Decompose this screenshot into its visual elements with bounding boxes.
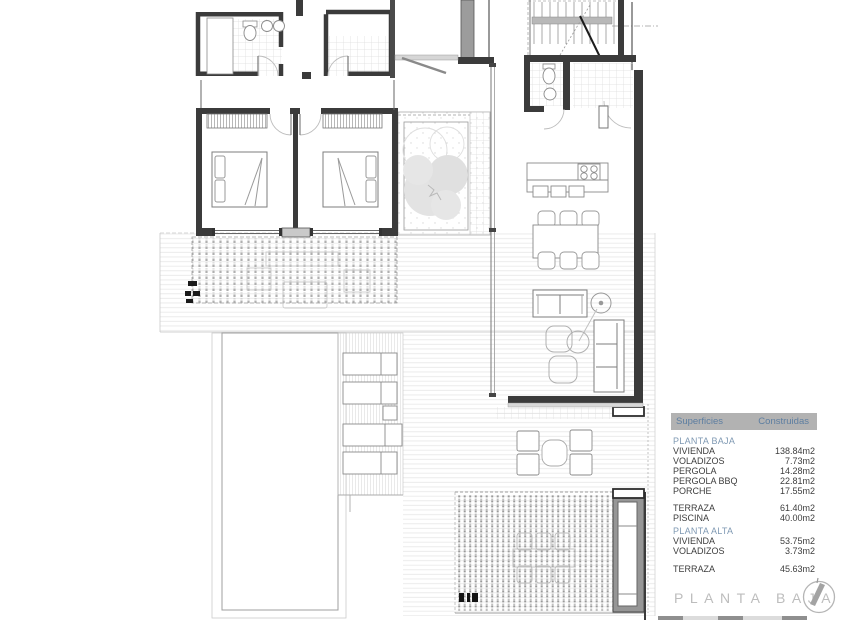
scale-bar <box>782 616 807 620</box>
section-title: PLANTA BAJA <box>671 436 817 446</box>
scale-bar <box>683 616 718 620</box>
table-row: VIVIENDA 138.84m2 <box>671 446 817 456</box>
step-block <box>613 407 644 416</box>
bedrooms <box>196 80 398 237</box>
kitchen <box>527 163 608 197</box>
scale-bar <box>743 616 782 620</box>
step-block <box>613 489 644 498</box>
built-in-bench <box>613 492 645 620</box>
scale-bar <box>658 616 683 620</box>
group-terraza-alta: TERRAZA 45.63m2 <box>671 564 817 574</box>
dining-set <box>533 211 599 269</box>
bed <box>212 152 267 207</box>
table-row: PERGOLA BBQ 22.81m2 <box>671 476 817 486</box>
wardrobe <box>207 114 267 128</box>
scale-bar <box>718 616 743 620</box>
header-superficies: Superficies <box>676 413 723 430</box>
header-construidas: Construidas <box>758 413 809 430</box>
sun-lounger-deck <box>338 333 403 512</box>
group-exterior: TERRAZA 61.40m2 PISCINA 40.00m2 <box>671 503 817 523</box>
pergola-terrace <box>185 237 397 308</box>
table-row: TERRAZA 61.40m2 <box>671 503 817 513</box>
wall-stub <box>302 72 311 79</box>
bbq-marker <box>459 593 478 602</box>
table-row: VOLADIZOS 7.73m2 <box>671 456 817 466</box>
group-planta-alta: PLANTA ALTA VIVIENDA 53.75m2 VOLADIZOS 3… <box>671 526 817 556</box>
bathroom-left <box>198 12 285 76</box>
table-row: PORCHE 17.55m2 <box>671 486 817 496</box>
wall-stub <box>296 0 303 16</box>
porch-tiles <box>496 407 612 419</box>
table-header: Superficies Construidas <box>671 413 817 430</box>
table-row: PISCINA 40.00m2 <box>671 513 817 523</box>
courtyard-tree-patio <box>398 112 490 235</box>
area-summary-table: Superficies Construidas PLANTA BAJA VIVI… <box>671 413 817 574</box>
sofa <box>594 320 624 392</box>
table-row: VIVIENDA 53.75m2 <box>671 536 817 546</box>
table-row: PERGOLA 14.28m2 <box>671 466 817 476</box>
table-row: TERRAZA 45.63m2 <box>671 564 817 574</box>
main-entry <box>390 0 494 78</box>
swimming-pool <box>212 333 346 618</box>
group-planta-baja: PLANTA BAJA VIVIENDA 138.84m2 VOLADIZOS … <box>671 436 817 496</box>
table-row: VOLADIZOS 3.73m2 <box>671 546 817 556</box>
north-indicator-icon <box>798 577 842 621</box>
powder-room <box>524 55 636 129</box>
wardrobe <box>323 114 382 128</box>
floor-plan-sheet: Superficies Construidas PLANTA BAJA VIVI… <box>0 0 850 620</box>
bed <box>323 152 378 207</box>
bathroom-right <box>326 12 391 76</box>
section-title: PLANTA ALTA <box>671 526 817 536</box>
